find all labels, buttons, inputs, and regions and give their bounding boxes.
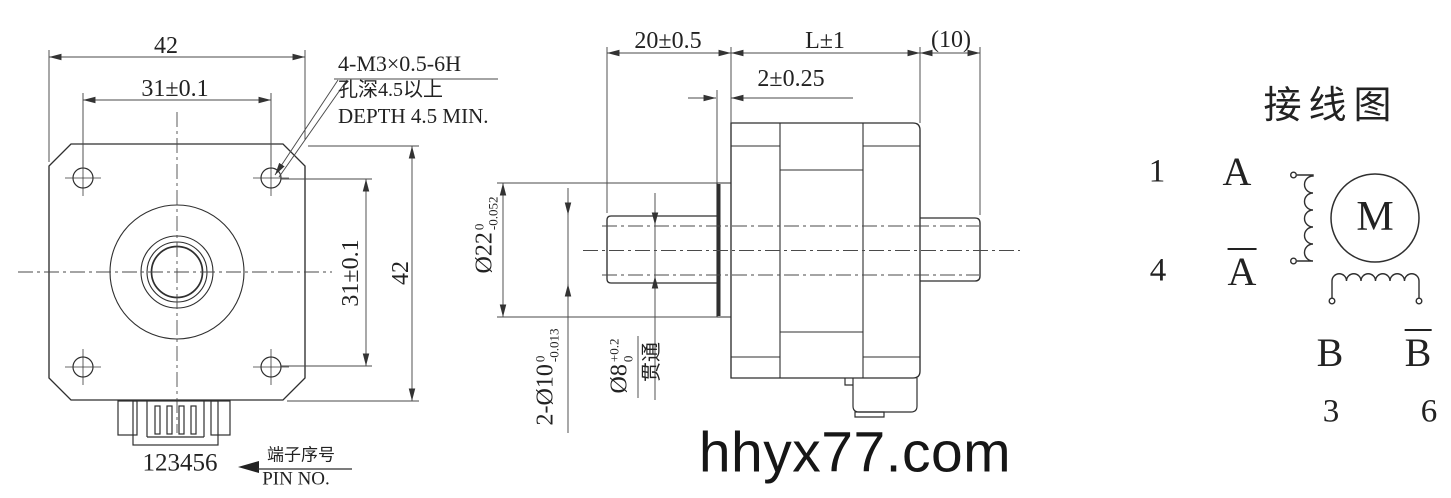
pilot-dia-tol-upper: 0 [472, 197, 486, 231]
dim-shaft-dia-label: 2-Ø100-0.013 [533, 329, 560, 426]
phase-b-coil [1332, 274, 1419, 298]
thread-spec-text: 4-M3×0.5-6H [338, 51, 489, 77]
dim-frame-width-label: 42 [154, 34, 178, 58]
dim-frame-height-label: 42 [389, 261, 413, 285]
dim-hole-spacing-top-label: 31±0.1 [141, 77, 208, 101]
engineering-drawing-page: 42 31±0.1 4-M3×0.5-6H 孔深4.5以上 DEPTH 4.5 … [0, 0, 1451, 498]
terminal-4-node [1291, 258, 1297, 264]
front-view-linework [18, 112, 332, 445]
pilot-dia-tol-lower: -0.052 [486, 197, 500, 231]
dim-rear-shaft-label: (10) [931, 28, 971, 52]
phase-b-bar-label: B [1405, 329, 1432, 373]
terminal-4-label: 4 [1150, 255, 1167, 288]
dim-pilot-dia-label: Ø220-0.052 [472, 197, 499, 274]
phase-a-bar-text: A [1228, 248, 1257, 292]
bore-dia-tol-lower: 0 [621, 339, 635, 363]
bore-dia-base: Ø8 [607, 364, 633, 393]
bore-through-label: 贯通 [642, 342, 662, 382]
wiring-diagram-title: 接线图 [1263, 87, 1398, 125]
pilot-dia-base: Ø22 [472, 232, 498, 273]
thread-callout: 4-M3×0.5-6H 孔深4.5以上 DEPTH 4.5 MIN. [338, 51, 489, 129]
phase-b-label: B [1317, 333, 1344, 373]
dim-body-length-label: L±1 [805, 29, 845, 53]
dim-hole-spacing-right-label: 31±0.1 [339, 239, 363, 306]
pin-label-en: PIN NO. [262, 470, 330, 489]
phase-a-coil [1297, 175, 1313, 261]
shaft-dia-tol-lower: -0.013 [547, 329, 561, 363]
dim-shaft-length-label: 20±0.5 [634, 29, 701, 53]
terminal-1-label: 1 [1149, 156, 1166, 189]
terminal-3-node [1329, 298, 1335, 304]
thread-depth-en-text: DEPTH 4.5 MIN. [338, 103, 489, 129]
pin-numbers-label: 123456 [143, 451, 218, 476]
phase-b-bar-text: B [1405, 329, 1432, 373]
phase-a-bar-label: A [1228, 248, 1257, 292]
thread-depth-cn-text: 孔深4.5以上 [338, 77, 489, 103]
bore-dia-tol-upper: +0.2 [607, 339, 621, 363]
terminal-6-label: 6 [1421, 396, 1438, 429]
dim-pilot-depth-label: 2±0.25 [757, 67, 824, 91]
terminal-1-node [1291, 172, 1297, 178]
terminal-6-node [1416, 298, 1422, 304]
motor-symbol-label: M [1356, 196, 1393, 238]
terminal-3-label: 3 [1323, 396, 1340, 429]
side-view-dimensions [497, 47, 980, 433]
pin-label-cn: 端子序号 [267, 447, 335, 464]
dim-bore-dia-label: Ø8+0.20 [607, 339, 634, 394]
shaft-dia-base: 2-Ø10 [533, 364, 559, 425]
watermark-text: hhyx77.com [699, 425, 1011, 482]
shaft-dia-tol-upper: 0 [533, 329, 547, 363]
phase-a-label: A [1223, 152, 1252, 192]
